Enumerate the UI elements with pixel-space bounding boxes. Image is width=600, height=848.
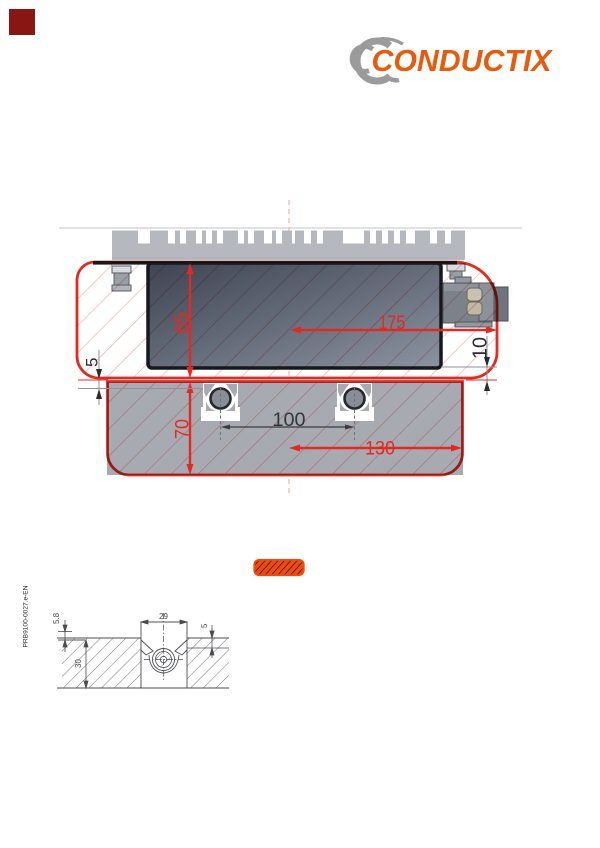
- svg-text:10: 10: [470, 337, 492, 359]
- svg-text:175: 175: [378, 313, 405, 334]
- svg-text:5.8: 5.8: [52, 612, 61, 624]
- svg-text:5: 5: [83, 358, 102, 367]
- svg-text:CONDUCTIX: CONDUCTIX: [372, 43, 554, 78]
- svg-text:70: 70: [173, 419, 194, 439]
- svg-text:5: 5: [200, 623, 209, 628]
- svg-text:130: 130: [365, 439, 395, 460]
- svg-text:30: 30: [74, 659, 83, 668]
- svg-text:85: 85: [172, 312, 193, 334]
- svg-text:29: 29: [159, 612, 168, 621]
- svg-text:100: 100: [273, 410, 306, 431]
